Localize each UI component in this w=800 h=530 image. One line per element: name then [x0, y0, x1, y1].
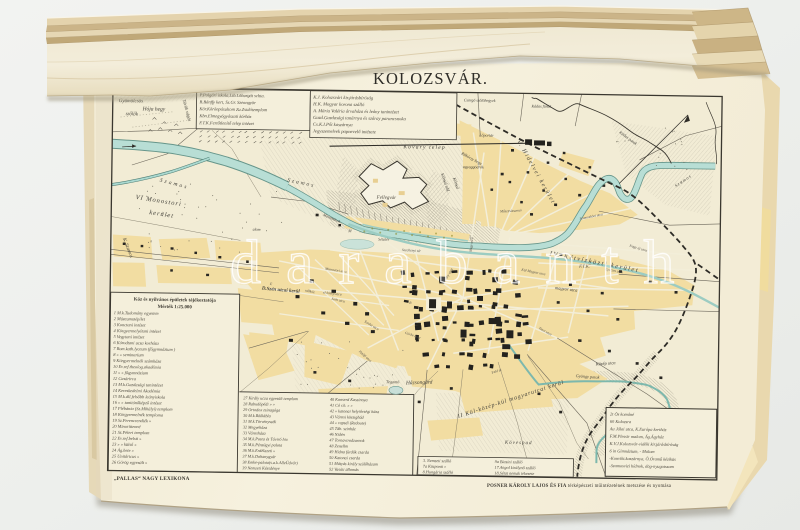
svg-text:35 M.k.Pénzügyi palota: 35 M.k.Pénzügyi palota — [243, 442, 283, 448]
svg-text:45 Táb. szinház: 45 Táb. szinház — [330, 426, 357, 431]
svg-text:31 M.k.Törvényszék: 31 M.k.Törvényszék — [243, 419, 276, 425]
svg-text:27 Király ucza egyesült templo: 27 Király ucza egyesült templom — [243, 395, 298, 401]
svg-text:Cs.K.I.Pőt kaszárnya: Cs.K.I.Pőt kaszárnya — [313, 123, 353, 129]
svg-text:51 Mátyás király szülőházam: 51 Mátyás király szülőházam — [329, 461, 378, 467]
svg-text:Lőportár: Lőportár — [478, 133, 494, 138]
svg-text:32 Megyeháza: 32 Megyeháza — [243, 425, 267, 430]
svg-text:szőlők: szőlők — [126, 112, 139, 117]
svg-text:52 Vasúti állomás: 52 Vasúti állomás — [329, 467, 359, 472]
svg-text:15 M.k.áll.felsőbb leányiskol: 15 M.k.áll.felsőbb leányiskola — [113, 394, 167, 400]
svg-text:36 M.k.Erdélazeti »: 36 M.k.Erdélazeti » — [242, 448, 275, 454]
svg-text:41 Có r.h. » »: 41 Có r.h. » » — [330, 403, 353, 408]
svg-text:21 Sz.Péteri templom: 21 Sz.Péteri templom — [112, 430, 149, 436]
svg-text:6 Kórodtani ucza korháza: 6 Kórodtani ucza korháza — [113, 340, 159, 346]
svg-text:1 M.k.Tudomány egyetem: 1 M.k.Tudomány egyetem — [114, 310, 159, 316]
svg-text:42 » katonai helyiőrségi h: 42 » katonai helyiőrségi háza — [330, 408, 379, 414]
svg-text:8.Hungária szálló: 8.Hungária szálló — [423, 469, 454, 474]
svg-text:49 Hidna fürdők csarda: 49 Hidna fürdők csarda — [329, 449, 369, 455]
svg-text:47 Tornavirodzarnok: 47 Tornavirodzarnok — [329, 437, 364, 443]
svg-text:Hója hegy: Hója hegy — [142, 106, 166, 112]
svg-text:26 Görög egyesült »: 26 Görög egyesült » — [112, 460, 148, 466]
svg-text:Mérték 1:25.000: Mérték 1:25.000 — [158, 305, 193, 311]
svg-text:40 Konserd Kaszinoya: 40 Konserd Kaszinoya — [330, 397, 368, 403]
svg-text:7 Rom.kath.lyceum (főgymnázi: 7 Rom.kath.lyceum (főgymnázium ) — [113, 346, 175, 352]
svg-text:9 Körgyermelnék számháza: 9 Körgyermelnék számháza — [113, 358, 162, 364]
svg-text:„PALLAS“ NAGY LEXIKONA: „PALLAS“ NAGY LEXIKONA — [114, 476, 190, 482]
svg-text:2 Múzeumszépilet: 2 Múzeumszépilet — [114, 316, 146, 321]
svg-text:Csörgő szőlőhegyek: Csörgő szőlőhegyek — [464, 97, 496, 102]
svg-text:Tegantó: Tegantó — [386, 379, 400, 384]
svg-text:29 Ortodox zsinagóga: 29 Ortodox zsinagóga — [243, 407, 280, 413]
svg-text:Kádas fürdő: Kádas fürdő — [531, 103, 553, 108]
svg-text:POSNER KÁROLY LAJOS ÉS FIA tér: POSNER KÁROLY LAJOS ÉS FIA térképészeti … — [487, 483, 672, 489]
svg-text:18.Sétat nemak tekezete: 18.Sétat nemak tekezete — [494, 470, 534, 476]
svg-text:3. Nemzeti szálló: 3. Nemzeti szálló — [423, 458, 452, 463]
svg-text:22 Ev.ref.belsti »: 22 Ev.ref.belsti » — [112, 436, 141, 441]
svg-text:25 Unitáricus »: 25 Unitáricus » — [112, 454, 140, 459]
svg-text:Kőváry telep: Kőváry telep — [402, 143, 446, 151]
svg-text:34 M.k.Posta és Táviró hiv.: 34 M.k.Posta és Táviró hiv. — [243, 436, 289, 442]
svg-text:agyaggödrök: agyaggödrök — [463, 164, 484, 169]
svg-text:14 Kereskedelmi Akadémia: 14 Kereskedelmi Akadémia — [113, 388, 162, 394]
svg-text:44 » rapsdi (Redoute): 44 » rapsdi (Redoute) — [330, 420, 367, 426]
svg-text:13 M.k.Gazdasági tanintézet: 13 M.k.Gazdasági tanintézet — [113, 382, 164, 388]
svg-text:28 Rabudópédi » »: 28 Rabudópédi » » — [243, 401, 275, 406]
svg-text:KOLOZSVÁR.: KOLOZSVÁR. — [373, 69, 488, 88]
svg-text:19 Sz.Ferencrendiék »: 19 Sz.Ferencrendiék » — [112, 418, 151, 424]
svg-text:43 Városi közsighád: 43 Városi közsighád — [330, 414, 365, 420]
svg-text:20 Minoritienné: 20 Minoritienné — [112, 424, 141, 429]
svg-text:Fellegvár: Fellegvár — [376, 196, 396, 201]
svg-text:7a Központi »: 7a Központi » — [423, 464, 447, 469]
svg-text:9a Biasini szálló: 9a Biasini szálló — [495, 459, 524, 464]
svg-text:8 » » seminarium: 8 » » seminarium — [113, 352, 144, 357]
svg-text:17 Plébánia (Sz.Mihályi) temp: 17 Plébánia (Sz.Mihályi) templom — [112, 406, 172, 412]
svg-text:48 Zenellm: 48 Zenellm — [329, 443, 348, 448]
svg-text:10 Ev.ref.theolog.akadémia: 10 Ev.ref.theolog.akadémia — [113, 364, 162, 370]
svg-text:K.J. Kolozsvári kir.járásbírós: K.J. Kolozsvári kir.járásbíróság — [312, 96, 374, 102]
svg-text:Kbn.Elmegyógyászati kórház: Kbn.Elmegyógyászati kórház — [198, 113, 251, 119]
svg-text:37 M.k.Dohanygyár: 37 M.k.Dohanygyár — [242, 454, 276, 460]
svg-text:12 Casárirca: 12 Casárirca — [113, 376, 137, 381]
svg-text:Kövespad: Kövespad — [504, 441, 533, 446]
svg-text:60 Kolozsra: 60 Kolozsra — [610, 419, 632, 424]
svg-text:11 » » főgymnázium: 11 » » főgymnázium — [113, 370, 148, 376]
svg-text:46 Nidén: 46 Nidén — [329, 432, 344, 437]
svg-text:24 Ág.hete »: 24 Ág.hete » — [112, 448, 134, 453]
svg-text:Jegyszemelvek papnevelő intéze: Jegyszemelvek papnevelő intézete — [313, 129, 376, 135]
svg-text:33 Városháza: 33 Városháza — [243, 430, 266, 435]
svg-text:39 Nemzeti Kézsdénye: 39 Nemzeti Kézsdénye — [242, 465, 280, 471]
svg-text:3 Konctani intézet: 3 Konctani intézet — [114, 322, 147, 328]
svg-text:4 Körgyermelyétani intézet: 4 Körgyermelyétani intézet — [114, 328, 162, 334]
svg-text:5 Vegytani intézet: 5 Vegytani intézet — [113, 334, 145, 339]
svg-text:16 » » tanitónőképző inté: 16 » » tanitónőképző intézet — [113, 400, 163, 406]
svg-text:50 Katonai csarda: 50 Katonai csarda — [329, 455, 360, 460]
svg-text:Kör.Körönpásultom Zu.Zsidótemp: Kör.Körönpásultom Zu.Zsidótemplom — [198, 106, 268, 112]
svg-text:darabanth: darabanth — [230, 229, 699, 297]
svg-text:H.K. Magyar korona szálló: H.K. Magyar korona szálló — [312, 102, 365, 108]
svg-text:18 Körgyermelnék temploma: 18 Körgyermelnék temploma — [112, 412, 164, 418]
svg-text:23 » » külső »: 23 » » külső » — [112, 442, 137, 447]
svg-text:2t Ös kománé: 2t Ös kománé — [610, 412, 635, 417]
svg-text:F.T.K.Fertőtlenítő telep intéz: F.T.K.Fertőtlenítő telep intézet — [198, 120, 254, 126]
svg-text:30 M.k.Bölkábla: 30 M.k.Bölkábla — [243, 413, 271, 418]
svg-text:Házsongárd: Házsongárd — [405, 379, 433, 386]
